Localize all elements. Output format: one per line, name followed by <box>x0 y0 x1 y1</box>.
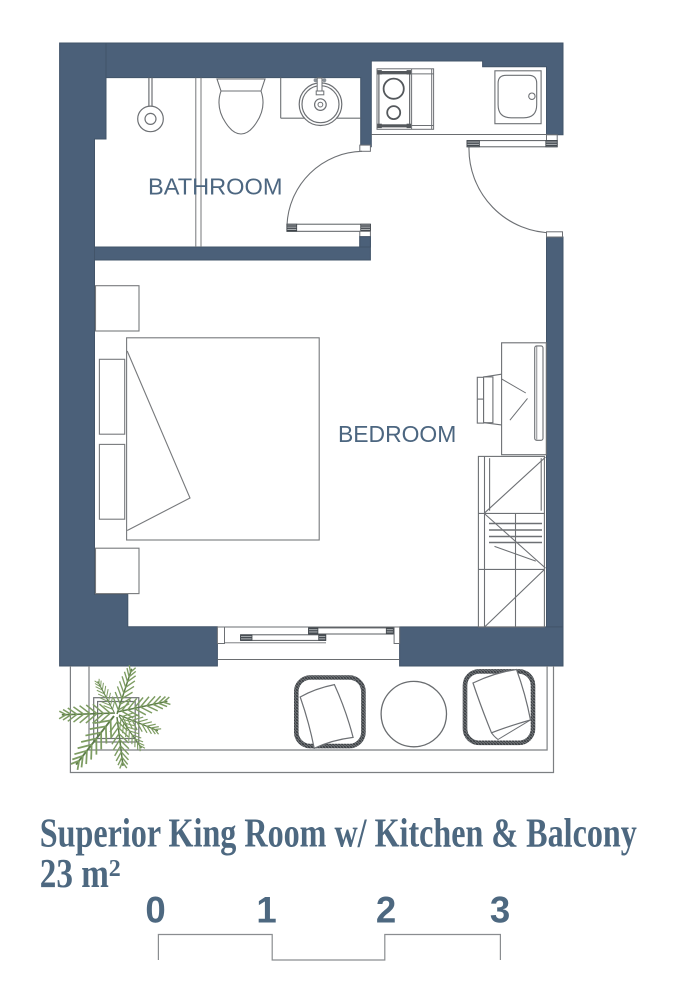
svg-text:0: 0 <box>145 890 165 931</box>
svg-text:BATHROOM: BATHROOM <box>148 174 283 200</box>
svg-text:BEDROOM: BEDROOM <box>338 421 456 447</box>
svg-text:23 m2: 23 m2 <box>40 850 121 896</box>
svg-text:1: 1 <box>256 890 276 931</box>
svg-text:2: 2 <box>376 890 396 931</box>
svg-text:Superior King Room w/ Kitchen: Superior King Room w/ Kitchen & Balcony <box>40 810 637 856</box>
svg-text:3: 3 <box>490 890 510 931</box>
